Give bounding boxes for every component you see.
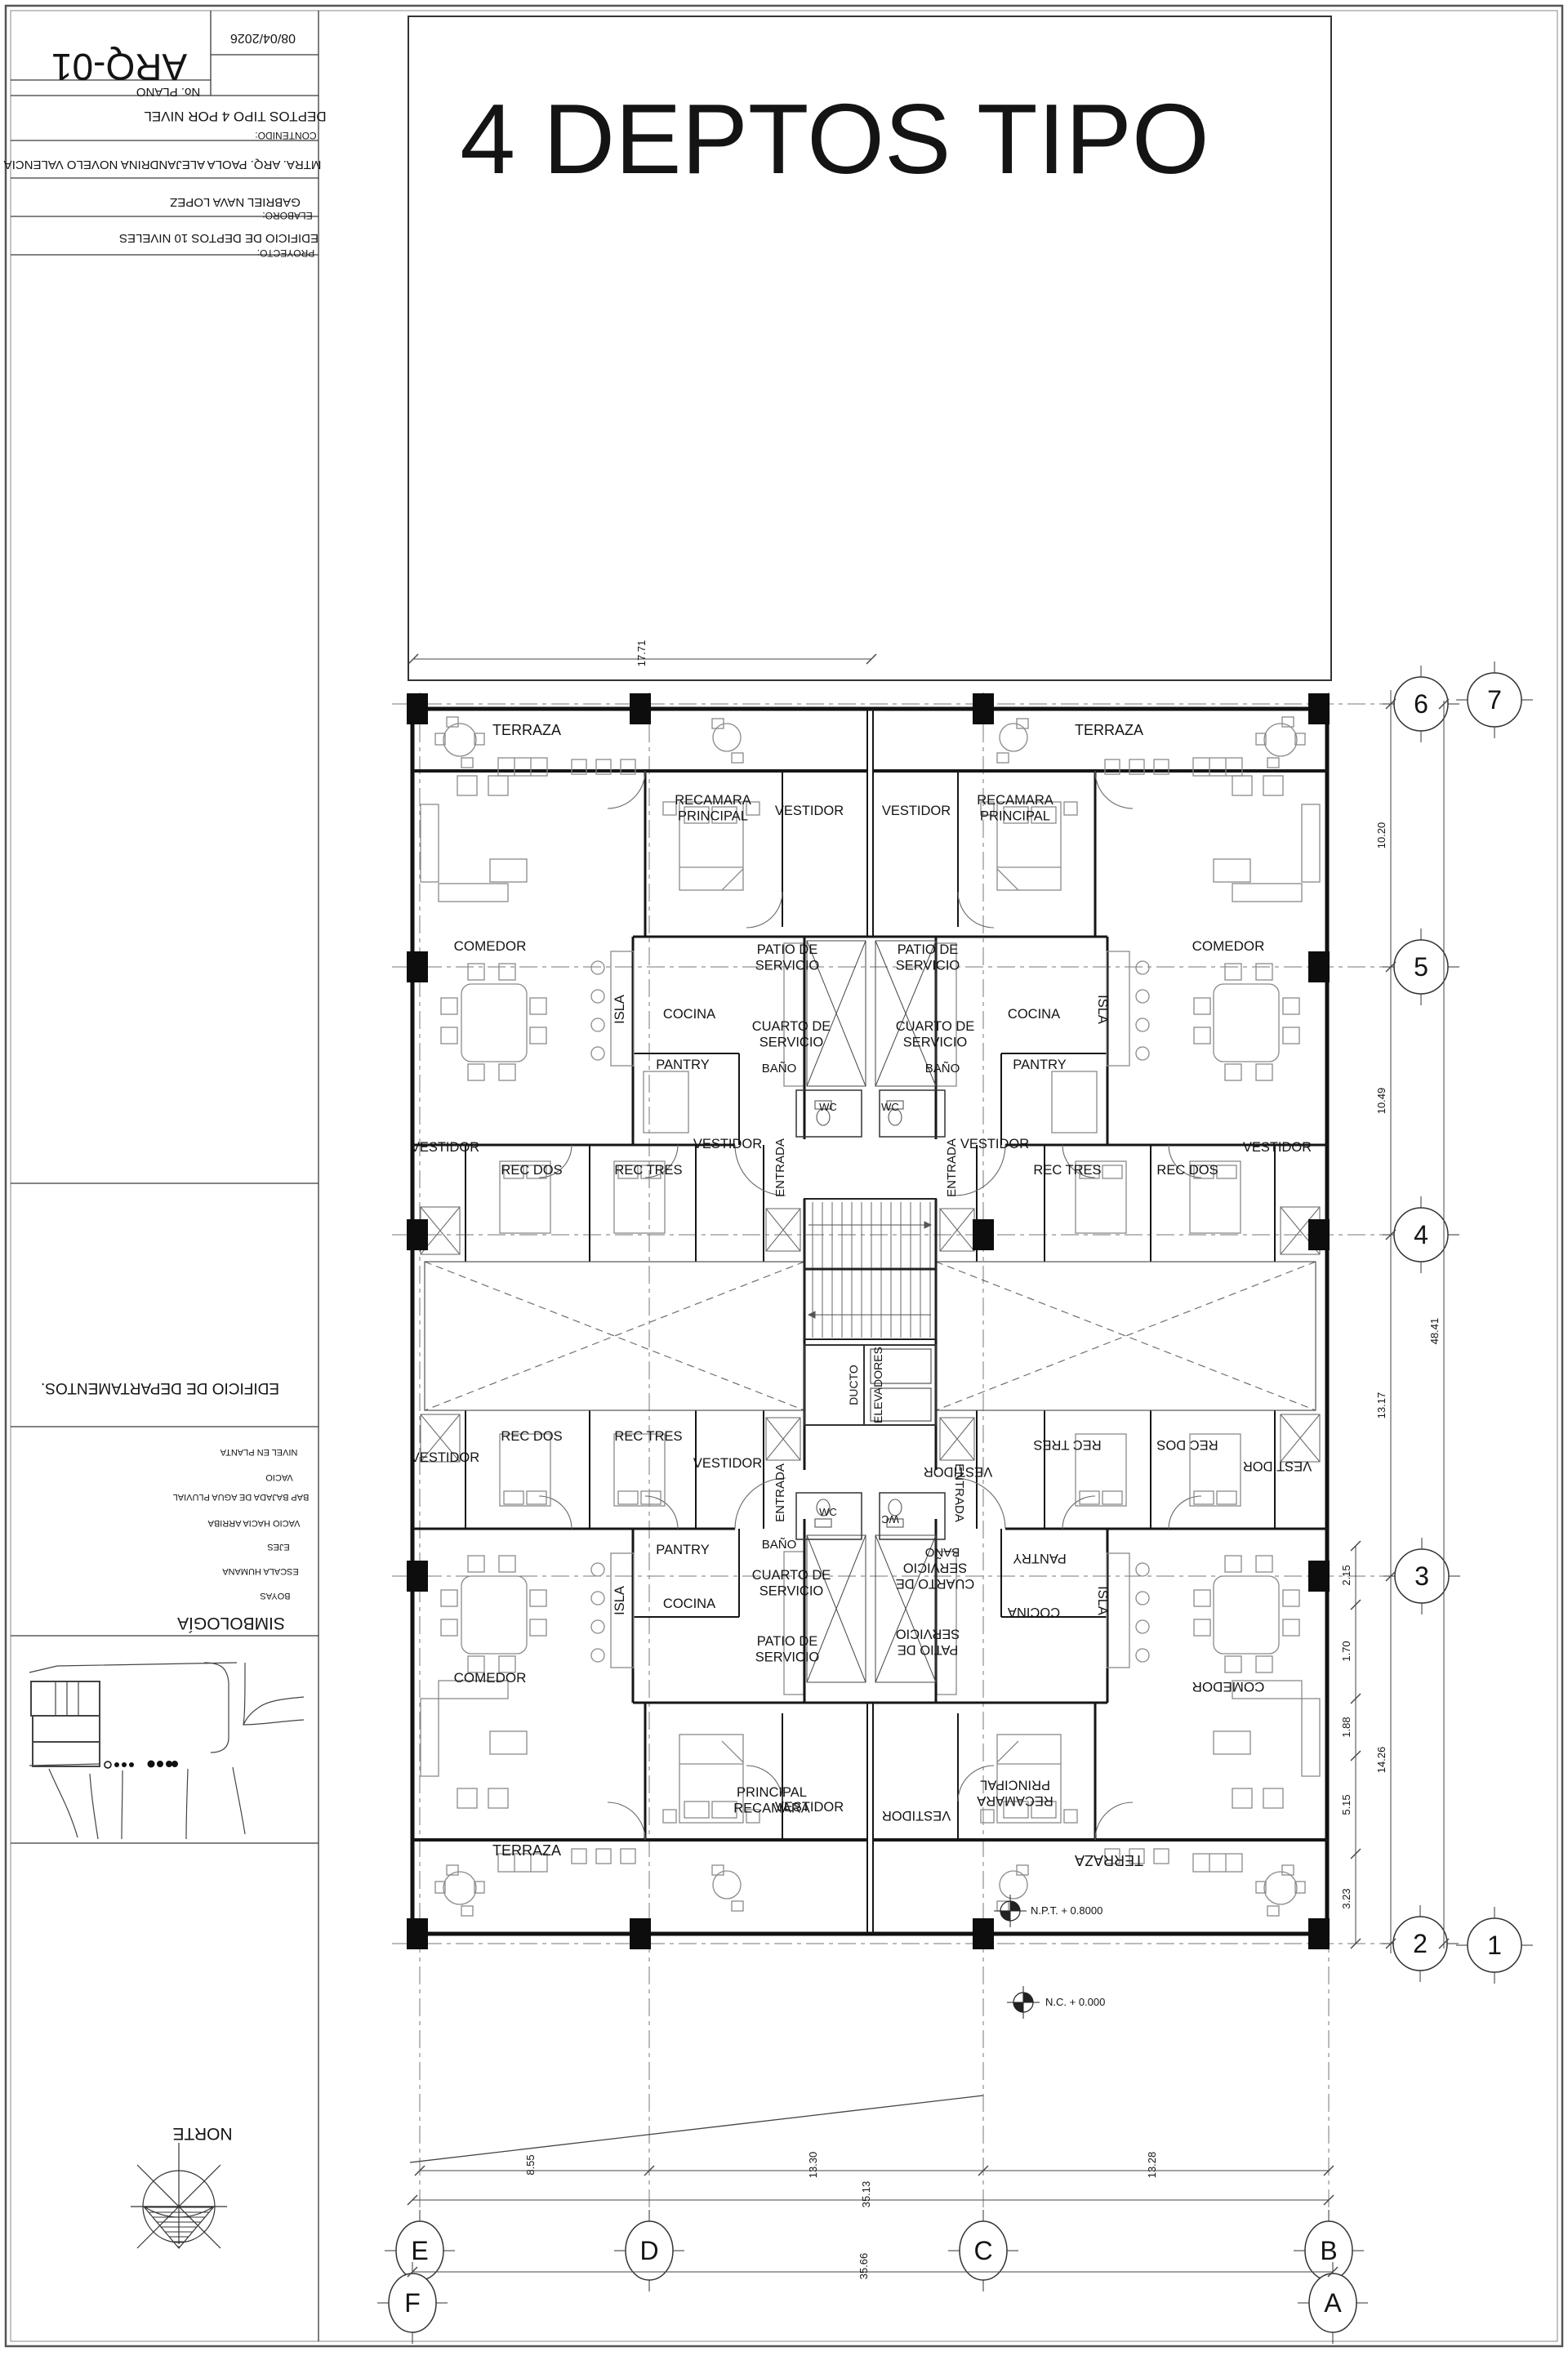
- drawing-sheet: 4 DEPTOS TIPOARQ-01No. PLANO08/04/2026DE…: [0, 0, 1568, 2352]
- svg-text:7: 7: [1487, 685, 1502, 715]
- room-label: CUARTO DESERVICIO: [752, 1019, 831, 1050]
- title-block: [11, 11, 318, 2341]
- room-label: REC DOS: [501, 1429, 562, 1444]
- room-label: ENTRADA: [773, 1138, 787, 1197]
- room-label: REC TRES: [1033, 1163, 1101, 1178]
- room-label: VESTIDOR: [775, 804, 844, 818]
- room-label: ISLA: [612, 995, 627, 1024]
- symbology-item: VACIO HACIA ARRIBA: [207, 1518, 301, 1528]
- room-label: REC TRES: [614, 1163, 682, 1178]
- room-label: BAÑO: [925, 1062, 960, 1076]
- room-label: PATIO DESERVICIO: [896, 942, 960, 973]
- room-label: BAÑO: [762, 1062, 797, 1076]
- room-label: COMEDOR: [1192, 1679, 1265, 1695]
- room-label: VESTIDOR: [882, 1808, 951, 1823]
- dim-label: 35.13: [860, 2181, 872, 2208]
- title-block-building-note: EDIFICIO DE DEPARTAMENTOS.: [41, 1379, 279, 1396]
- level-marker-cross: [994, 1895, 1027, 1927]
- dim-label: 13.30: [807, 2152, 819, 2179]
- room-label: CUARTO DESERVICIO: [896, 1561, 975, 1592]
- room-label: WC: [819, 1101, 837, 1113]
- room-label: DUCTO: [847, 1365, 860, 1405]
- room-label: PATIO DESERVICIO: [755, 942, 820, 973]
- dim-label: 5.15: [1340, 1794, 1352, 1815]
- symbology-item: EJES: [267, 1542, 290, 1552]
- room-label: VESTIDOR: [693, 1137, 762, 1151]
- room-label: PANTRY: [656, 1543, 709, 1557]
- room-label: TERRAZA: [1075, 1852, 1143, 1868]
- room-label: VESTIDOR: [411, 1450, 479, 1465]
- room-label: PATIO DESERVICIO: [755, 1634, 820, 1665]
- room-label: COCINA: [663, 1597, 715, 1611]
- title-block-advisor: MTRA. ARQ. PAOLA ALEJANDRINA NOVELO VALE…: [4, 158, 322, 171]
- grid-bubble-C: C: [948, 2210, 1018, 2291]
- level-marker-cross: [1007, 1986, 1040, 2019]
- room-label: WC: [881, 1513, 899, 1525]
- level-text: N.C. + 0.000: [1045, 1996, 1105, 2008]
- room-label: ISLA: [1095, 1586, 1110, 1615]
- room-label: PANTRY: [1013, 1551, 1066, 1565]
- location-map: [29, 1663, 304, 1839]
- svg-text:3: 3: [1414, 1561, 1429, 1591]
- furniture: [421, 717, 804, 1916]
- dim-label: 1.88: [1340, 1717, 1352, 1737]
- room-label: COMEDOR: [454, 938, 527, 954]
- title-block-elaboro-value: GABRIEL NAVA LOPEZ: [170, 195, 301, 209]
- room-label: ISLA: [612, 1586, 627, 1615]
- grid-bubble-D: D: [614, 2210, 684, 2291]
- dim-label: 14.26: [1375, 1747, 1388, 1774]
- title-block-proyecto-label: PROYECTO:: [257, 247, 314, 259]
- grid-bubble-2: 2: [1382, 1905, 1459, 1982]
- dimension-chain: 2.151.701.885.153.23: [1340, 1541, 1361, 1948]
- stairs: [804, 1199, 936, 1339]
- room-label: RECAMARAPRINCIPAL: [977, 1778, 1053, 1809]
- grid-bubble-5: 5: [1383, 929, 1459, 1005]
- svg-text:C: C: [973, 2236, 992, 2265]
- dim-label: 48.41: [1428, 1318, 1441, 1345]
- svg-text:D: D: [639, 2236, 658, 2265]
- room-label: CUARTO DESERVICIO: [752, 1568, 831, 1599]
- property-line: [410, 2095, 983, 2162]
- generated-annotations: 4 DEPTOS TIPOARQ-01No. PLANO08/04/2026DE…: [4, 31, 1533, 2344]
- dim-label: 35.66: [857, 2253, 870, 2280]
- dim-label: 1.70: [1340, 1641, 1352, 1661]
- apartment-walls-right: [873, 717, 1328, 1916]
- grid-axes: [392, 693, 1388, 2220]
- grid-bubble-7: 7: [1456, 661, 1533, 738]
- north-arrow-icon: [131, 2143, 227, 2248]
- dim-label: 17.71: [635, 640, 648, 667]
- room-label: ELEVADORES: [871, 1347, 884, 1423]
- svg-text:4: 4: [1414, 1220, 1428, 1249]
- dim-label: 13.17: [1375, 1392, 1388, 1419]
- room-label: VESTIDOR: [882, 804, 951, 818]
- room-label: VESTIDOR: [775, 1800, 844, 1815]
- symbology-item: BAP BAJADA DE AGUA PLUVIAL: [173, 1492, 310, 1502]
- room-label: COMEDOR: [454, 1670, 527, 1686]
- room-label: COCINA: [663, 1007, 715, 1022]
- svg-text:F: F: [404, 2288, 421, 2318]
- dimension-chain: 8.5513.3013.28: [415, 2152, 1334, 2179]
- core: [796, 709, 945, 1934]
- svg-text:5: 5: [1414, 952, 1428, 982]
- title-block-contenido-label: CONTENIDO:: [255, 130, 316, 141]
- room-label: TERRAZA: [492, 1842, 561, 1859]
- svg-text:1: 1: [1487, 1931, 1502, 1960]
- title-block-date: 08/04/2026: [230, 31, 296, 45]
- room-label: COMEDOR: [1192, 938, 1265, 954]
- dim-label: 8.55: [524, 2154, 537, 2175]
- dimension-chain: 48.41: [1428, 699, 1449, 1948]
- room-label: REC DOS: [1156, 1163, 1218, 1178]
- title-block-proyecto-value: EDIFICIO DE DEPTOS 10 NIVELES: [119, 231, 318, 245]
- room-label: COCINA: [1008, 1605, 1060, 1619]
- room-label: REC DOS: [501, 1163, 562, 1178]
- outer-walls: [412, 709, 1327, 1934]
- room-label: RECAMARAPRINCIPAL: [675, 793, 751, 824]
- title-block-plan-number-label: No. PLANO: [136, 85, 200, 99]
- level-text: N.P.T. + 0.8000: [1031, 1904, 1102, 1917]
- grid-bubble-A: A: [1298, 2262, 1368, 2344]
- room-label: REC TRES: [1033, 1437, 1101, 1452]
- svg-text:E: E: [411, 2236, 428, 2265]
- dimension-chain: 10.2010.4913.1714.26: [1375, 690, 1396, 1953]
- title-block-north-label: NORTE: [172, 2124, 232, 2143]
- title-block-plan-number: ARQ-01: [51, 46, 187, 88]
- room-label: VESTIDOR: [1243, 1140, 1312, 1155]
- title-block-symbology-header: SIMBOLOGÍA: [177, 1614, 285, 1632]
- title-block-contenido-value: DEPTOS TIPO 4 POR NIVEL: [144, 109, 326, 124]
- symbology-item: ESCALA HUMANA: [222, 1566, 299, 1576]
- dim-label: 10.20: [1375, 822, 1388, 849]
- dim-label: 3.23: [1340, 1888, 1352, 1908]
- room-label: PANTRY: [656, 1058, 709, 1072]
- dim-label: 10.49: [1375, 1088, 1388, 1115]
- room-label: PATIO DESERVICIO: [896, 1627, 960, 1658]
- room-label: BAÑO: [762, 1538, 797, 1552]
- dim-label: 2.15: [1340, 1565, 1352, 1585]
- room-label: VESTIDOR: [411, 1140, 479, 1155]
- apartment-walls-left: [412, 717, 867, 1916]
- svg-text:A: A: [1324, 2288, 1342, 2318]
- room-label: TERRAZA: [1075, 722, 1143, 738]
- room-label: VESTIDOR: [693, 1456, 762, 1471]
- map-markers: [105, 1761, 178, 1769]
- dimension-chain: 35.13: [408, 2181, 1334, 2208]
- room-label: WC: [881, 1101, 899, 1113]
- sheet-title: 4 DEPTOS TIPO: [460, 83, 1209, 194]
- room-label: COCINA: [1008, 1007, 1060, 1022]
- grid-bubble-4: 4: [1383, 1196, 1459, 1273]
- room-label: BAÑO: [925, 1545, 960, 1559]
- room-label: ENTRADA: [952, 1463, 966, 1522]
- elevators: [804, 1345, 936, 1425]
- dimension-chain: 35.66: [408, 2253, 1338, 2280]
- room-label: PANTRY: [1013, 1058, 1066, 1072]
- room-label: VESTIDOR: [1243, 1459, 1312, 1473]
- symbology-item: VACIO: [265, 1472, 293, 1482]
- room-label: CUARTO DESERVICIO: [896, 1019, 975, 1050]
- symbology-item: NIVEL EN PLANTA: [220, 1447, 297, 1457]
- room-label: REC DOS: [1156, 1437, 1218, 1452]
- dim-label: 13.28: [1146, 2152, 1158, 2179]
- room-label: ENTRADA: [945, 1138, 959, 1197]
- floor-plan-svg: 4 DEPTOS TIPOARQ-01No. PLANO08/04/2026DE…: [0, 0, 1568, 2352]
- room-label: VESTIDOR: [960, 1137, 1029, 1151]
- symbology-item: BOYAS: [260, 1591, 290, 1601]
- room-label: RECAMARAPRINCIPAL: [977, 793, 1053, 824]
- grid-bubble-F: F: [377, 2262, 448, 2344]
- room-label: WC: [819, 1506, 837, 1518]
- room-label: ISLA: [1095, 995, 1110, 1024]
- room-label: ENTRADA: [773, 1463, 787, 1522]
- grid-bubble-6: 6: [1383, 666, 1459, 742]
- svg-text:6: 6: [1414, 689, 1428, 719]
- dimension-chain: 17.71: [408, 640, 876, 667]
- grid-bubble-3: 3: [1383, 1538, 1460, 1614]
- title-block-elaboro-label: ELABORO:: [262, 210, 312, 221]
- svg-text:B: B: [1320, 2236, 1337, 2265]
- svg-text:2: 2: [1413, 1929, 1428, 1958]
- room-label: TERRAZA: [492, 722, 561, 738]
- room-label: REC TRES: [614, 1429, 682, 1444]
- grid-bubble-1: 1: [1456, 1907, 1533, 1984]
